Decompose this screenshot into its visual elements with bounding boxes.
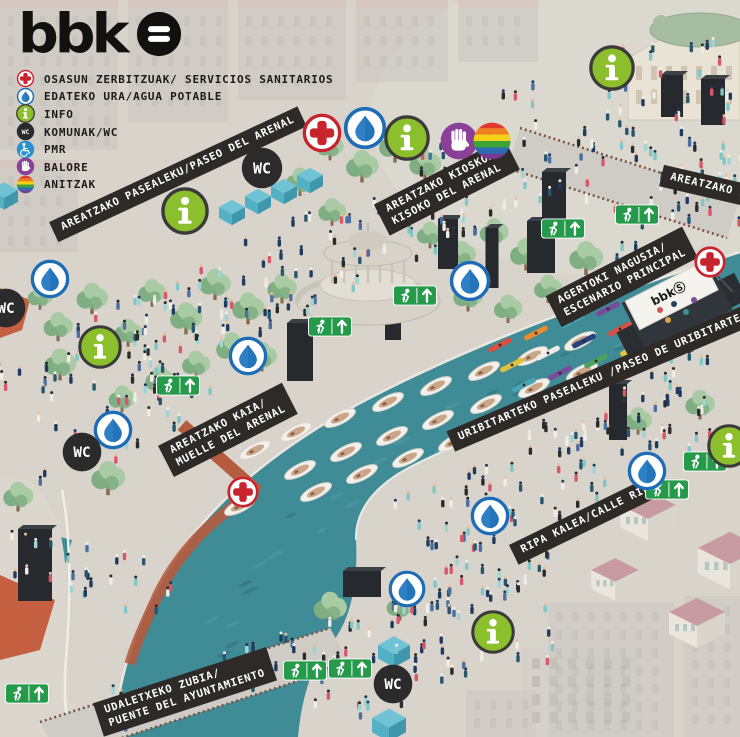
legend: bbk OSASUN ZERBITZUAK/ SERVICIOS SANITAR… bbox=[16, 8, 333, 193]
marker-info-icon bbox=[78, 325, 122, 373]
marker-wc-icon: WC bbox=[0, 287, 27, 333]
legend-item-label: ANITZAK bbox=[44, 177, 96, 191]
legend-item-wc: WCKOMUNAK/WC bbox=[16, 123, 333, 141]
legend-item-label: KOMUNAK/WC bbox=[44, 125, 118, 139]
festival-map: bbkⓈ AREATZAKO PASEALEKU/PASEO DEL ARENA… bbox=[0, 0, 740, 737]
marker-info-icon bbox=[471, 610, 515, 658]
bbk-logo: bbk bbox=[18, 8, 333, 60]
legend-item-pmr: PMR bbox=[16, 140, 333, 158]
svg-text:WC: WC bbox=[73, 445, 90, 461]
legend-item-water: EDATEKO URA/AGUA POTABLE bbox=[16, 88, 333, 106]
marker-medical-icon bbox=[693, 245, 727, 283]
marker-wc-icon: WC bbox=[61, 431, 103, 477]
marker-info-icon bbox=[161, 187, 209, 239]
legend-item-label: PMR bbox=[44, 142, 66, 156]
legend-item-balore: BALORE bbox=[16, 158, 333, 176]
marker-water-icon bbox=[387, 569, 427, 613]
marker-water-icon bbox=[469, 495, 511, 541]
legend-item-medical: OSASUN ZERBITZUAK/ SERVICIOS SANITARIOS bbox=[16, 70, 333, 88]
wc-icon: WC bbox=[16, 122, 35, 141]
legend-item-info: INFO bbox=[16, 105, 333, 123]
legend-item-label: EDATEKO URA/AGUA POTABLE bbox=[44, 89, 222, 103]
legend-items: OSASUN ZERBITZUAK/ SERVICIOS SANITARIOS … bbox=[16, 70, 333, 193]
marker-wc-icon: WC bbox=[372, 663, 414, 709]
marker-water-icon bbox=[626, 450, 668, 496]
marker-water-icon bbox=[29, 258, 71, 304]
balore-icon bbox=[16, 157, 35, 176]
bbk-logo-text: bbk bbox=[18, 7, 126, 62]
marker-info-icon bbox=[384, 115, 430, 165]
marker-water-icon bbox=[227, 335, 269, 381]
bbk-logo-mark bbox=[136, 11, 182, 61]
water-icon bbox=[16, 87, 35, 106]
pmr-icon bbox=[16, 140, 35, 159]
svg-text:WC: WC bbox=[384, 677, 401, 693]
medical-icon bbox=[16, 69, 35, 88]
marker-medical-icon bbox=[226, 475, 260, 513]
marker-info-icon bbox=[707, 424, 740, 472]
svg-text:WC: WC bbox=[0, 301, 15, 317]
marker-water-icon bbox=[448, 259, 492, 307]
legend-item-label: INFO bbox=[44, 107, 74, 121]
marker-anitzak-icon bbox=[472, 121, 512, 165]
marker-info-icon bbox=[589, 45, 635, 95]
legend-item-label: BALORE bbox=[44, 160, 89, 174]
info-icon bbox=[16, 104, 35, 123]
anitzak-icon bbox=[16, 175, 35, 194]
legend-item-label: OSASUN ZERBITZUAK/ SERVICIOS SANITARIOS bbox=[44, 72, 333, 86]
svg-text:WC: WC bbox=[22, 128, 30, 136]
legend-item-anitzak: ANITZAK bbox=[16, 176, 333, 194]
marker-water-icon bbox=[342, 105, 388, 155]
